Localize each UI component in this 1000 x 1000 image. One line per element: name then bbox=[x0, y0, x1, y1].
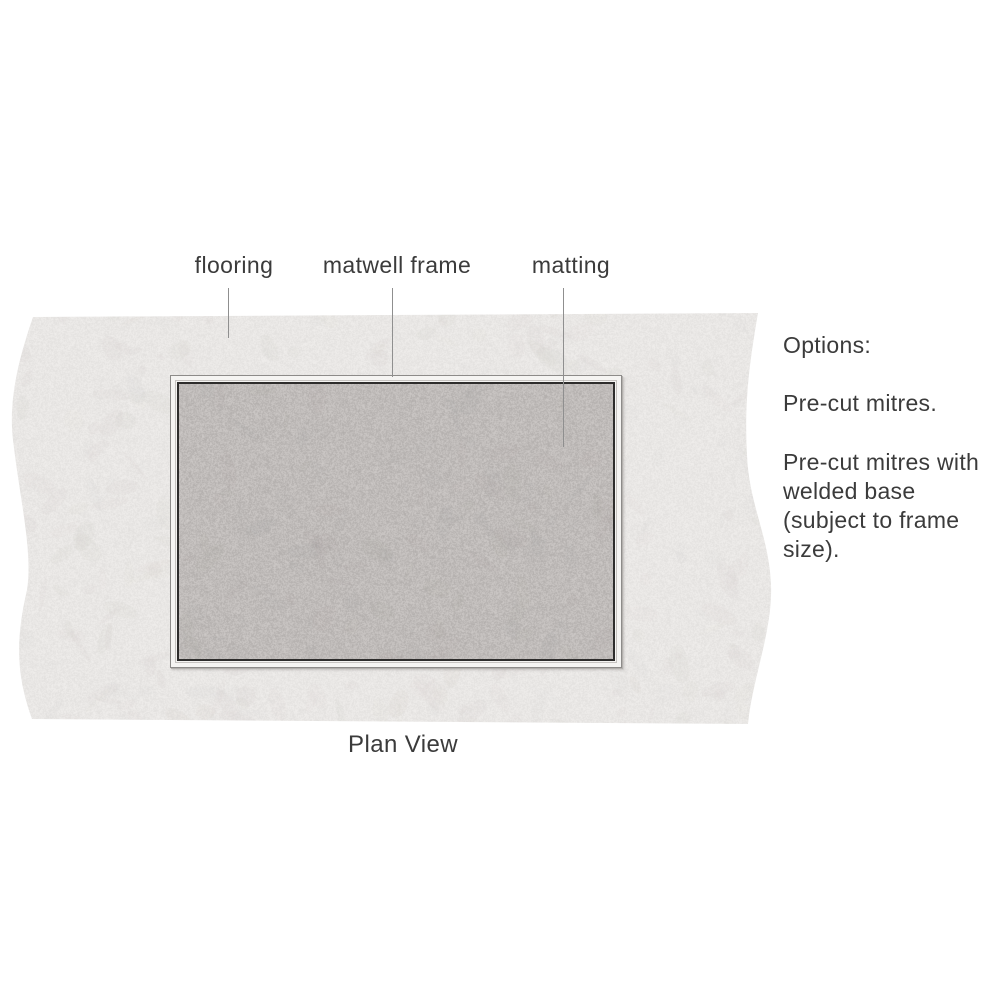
matwell-frame bbox=[170, 375, 622, 668]
matting-label: matting bbox=[532, 252, 610, 279]
matting-leader-line bbox=[563, 288, 564, 447]
matwell-frame-face bbox=[175, 380, 617, 663]
flooring-leader-line bbox=[228, 288, 229, 338]
matting-surface bbox=[179, 384, 613, 659]
matwell-frame-label: matwell frame bbox=[323, 252, 471, 279]
plan-view-caption: Plan View bbox=[348, 731, 458, 759]
options-item-precut-mitres: Pre-cut mitres. bbox=[783, 389, 995, 418]
matwell-frame-inner-edge bbox=[177, 382, 615, 661]
options-text-block: Options: Pre-cut mitres. Pre-cut mitres … bbox=[783, 331, 995, 564]
flooring-label: flooring bbox=[195, 252, 274, 279]
options-item2-line3: (subject to frame bbox=[783, 507, 959, 533]
matwell-frame-leader-line bbox=[392, 288, 393, 377]
options-item2-line2: welded base bbox=[783, 478, 915, 504]
diagram-canvas: flooring matwell frame matting Options: … bbox=[0, 0, 1000, 1000]
options-heading: Options: bbox=[783, 331, 995, 360]
options-item2-line1: Pre-cut mitres with bbox=[783, 449, 979, 475]
options-item-precut-mitres-welded-base: Pre-cut mitres with welded base (subject… bbox=[783, 448, 995, 564]
options-item2-line4: size). bbox=[783, 536, 840, 562]
